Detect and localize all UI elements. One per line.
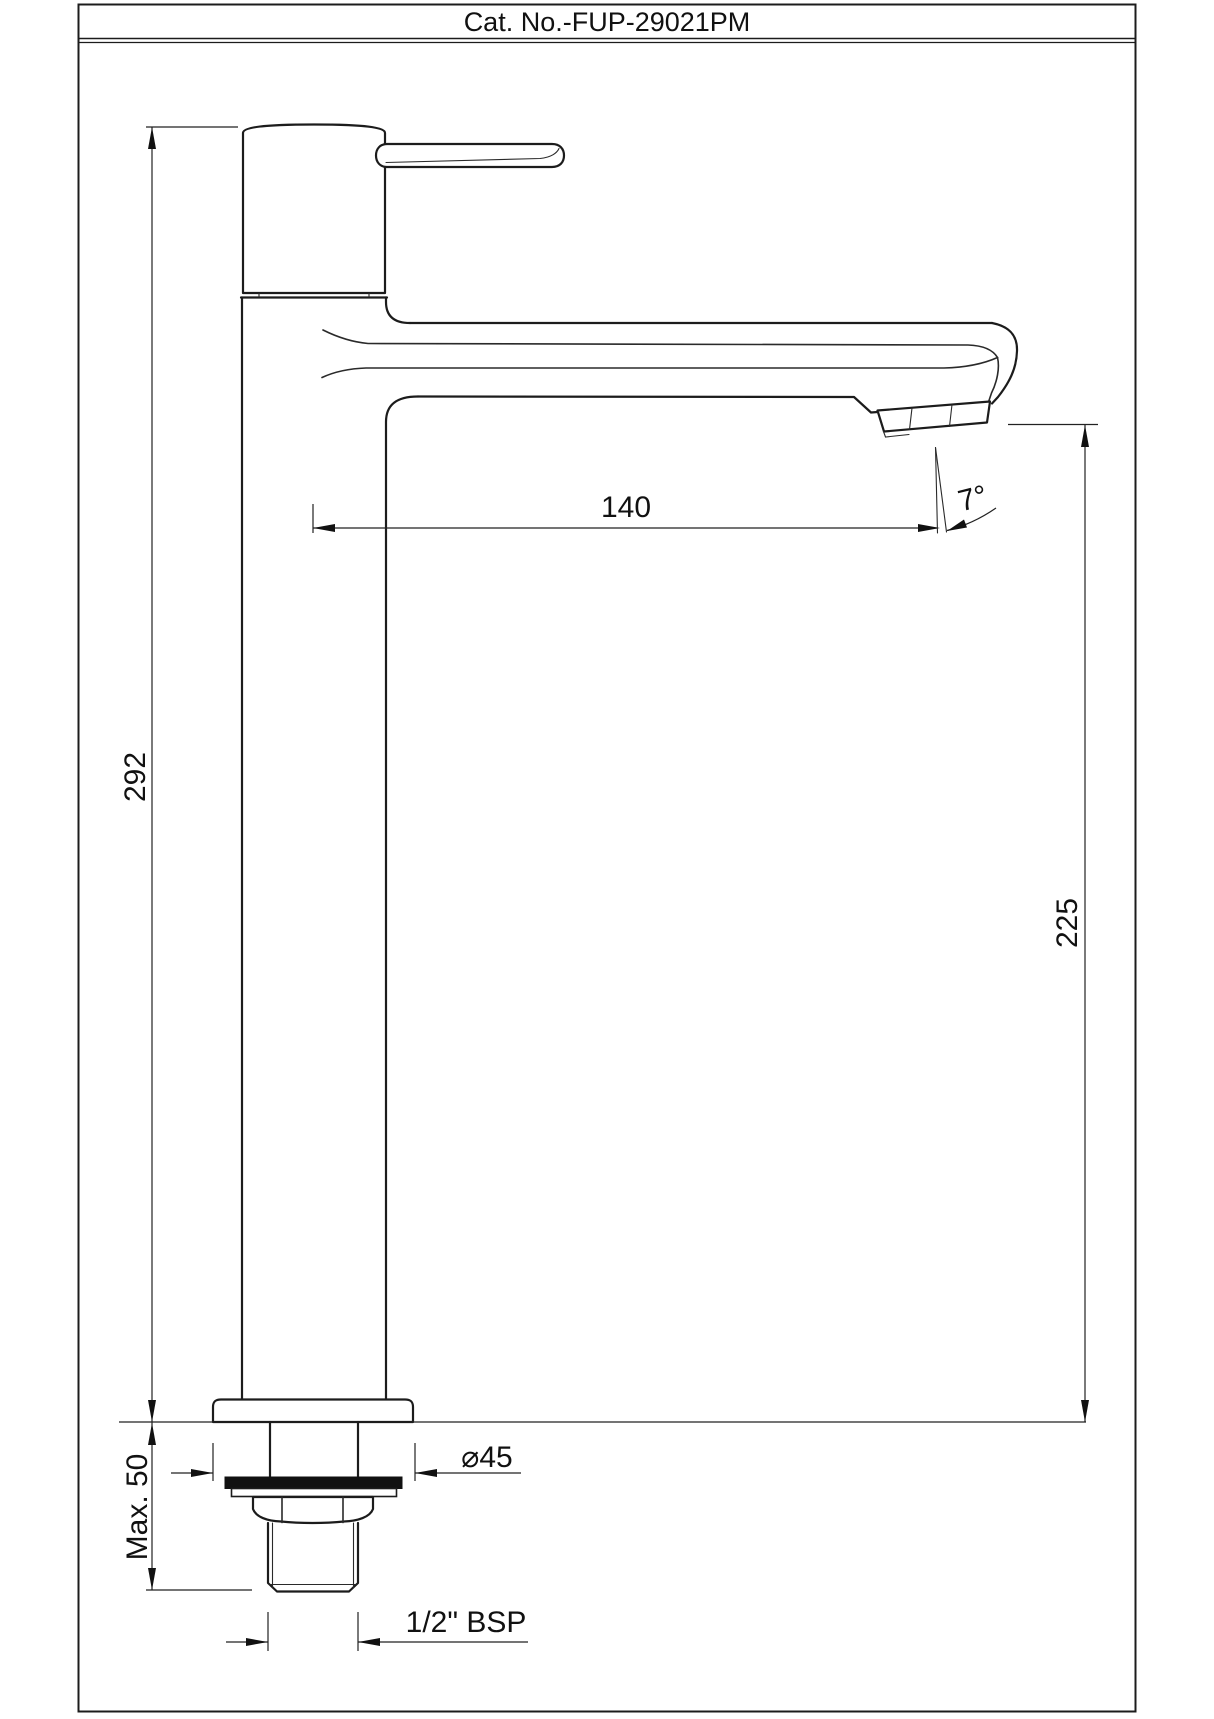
rubber-washer: [225, 1477, 402, 1497]
mounting-nut: [253, 1497, 373, 1523]
dim-inlet-thread-label: 1/2" BSP: [406, 1606, 527, 1639]
dim-overall-height-label: 292: [119, 752, 152, 802]
dim-spout-reach-label: 140: [601, 491, 651, 524]
base-flange: [213, 1400, 413, 1423]
technical-drawing-canvas: Cat. No.-FUP-29021PM: [0, 0, 1214, 1719]
dim-base-diameter-label: ⌀45: [461, 1441, 512, 1474]
lever-handle: [376, 144, 564, 167]
page-frame: [79, 5, 1136, 1712]
catalog-number-text: Cat. No.-FUP-29021PM: [464, 7, 751, 37]
handle-body: [243, 125, 385, 298]
dim-outlet-height-label: 225: [1051, 898, 1084, 948]
dim-max-thickness-label: Max. 50: [121, 1454, 154, 1561]
drawing-sheet: Cat. No.-FUP-29021PM: [0, 0, 1214, 1719]
title-bar: Cat. No.-FUP-29021PM: [464, 7, 751, 37]
